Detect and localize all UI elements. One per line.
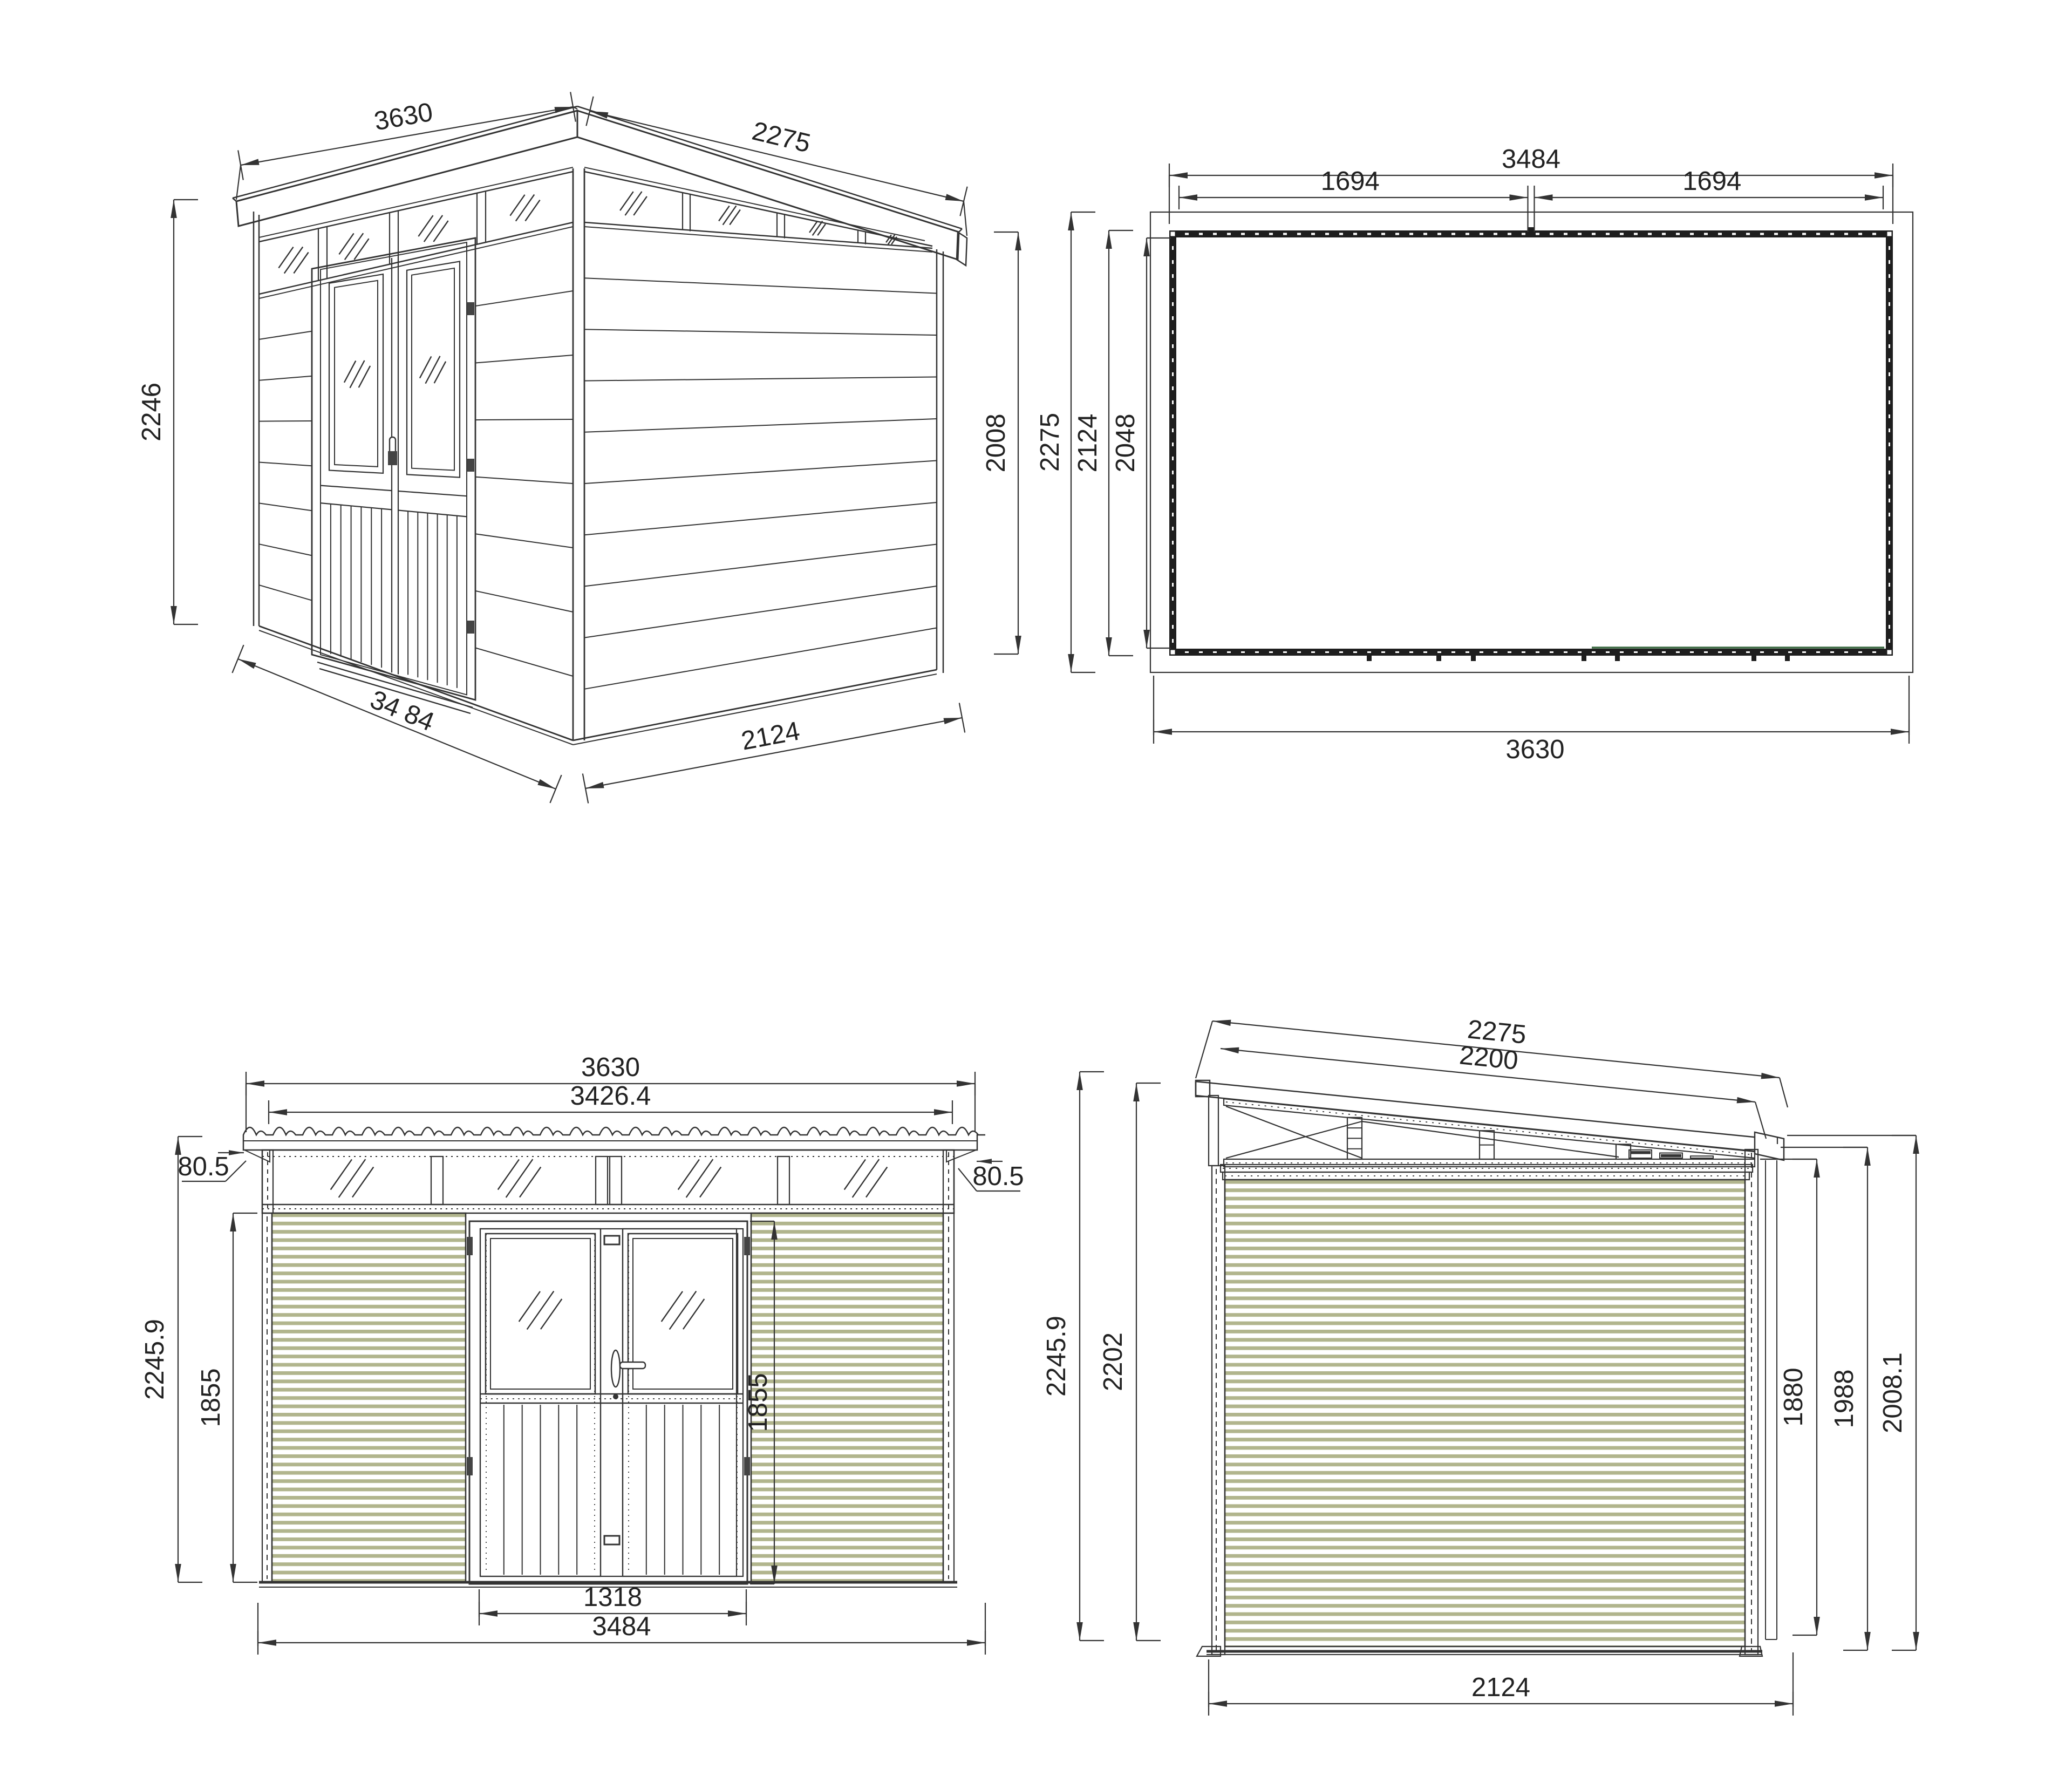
svg-text:1988: 1988 [1830, 1369, 1859, 1428]
svg-text:3484: 3484 [1502, 145, 1560, 174]
svg-text:1855: 1855 [744, 1373, 773, 1432]
svg-text:1694: 1694 [1321, 167, 1380, 196]
svg-text:2124: 2124 [1073, 413, 1102, 472]
svg-text:2048: 2048 [1111, 413, 1140, 472]
svg-text:2008: 2008 [982, 413, 1011, 472]
svg-text:2245.9: 2245.9 [140, 1319, 169, 1400]
svg-text:2008.1: 2008.1 [1878, 1352, 1907, 1433]
svg-text:2245.9: 2245.9 [1042, 1316, 1071, 1397]
svg-text:1855: 1855 [196, 1368, 226, 1427]
svg-text:80.5: 80.5 [972, 1162, 1024, 1191]
svg-text:2275: 2275 [1035, 413, 1065, 472]
svg-text:3630: 3630 [1505, 735, 1564, 764]
svg-text:2202: 2202 [1099, 1332, 1128, 1391]
svg-text:2124: 2124 [1471, 1673, 1530, 1702]
svg-text:2246: 2246 [137, 383, 166, 441]
svg-text:3484: 3484 [592, 1612, 651, 1641]
svg-text:1318: 1318 [583, 1583, 642, 1612]
svg-text:3630: 3630 [581, 1053, 640, 1082]
svg-text:80.5: 80.5 [178, 1152, 229, 1181]
svg-text:3426.4: 3426.4 [570, 1081, 651, 1111]
svg-text:2200: 2200 [1458, 1040, 1519, 1076]
svg-text:1694: 1694 [1682, 167, 1741, 196]
svg-text:1880: 1880 [1779, 1367, 1808, 1426]
